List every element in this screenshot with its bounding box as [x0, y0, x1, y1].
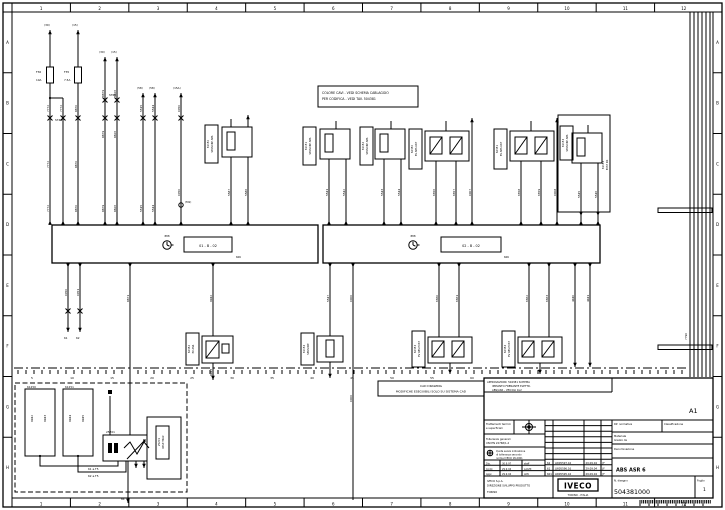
tb-top-note-2: IMPIANTO FRENANTE ELETTR. [492, 384, 531, 388]
zone-label-bottom: 2 [98, 502, 101, 507]
signature-cell: Dis. [486, 463, 491, 466]
note-line-2: PER CODIFICA - VEDI TAV. 504381 [322, 97, 376, 101]
entry-arrow [115, 221, 119, 225]
solenoid-diagonals [522, 341, 554, 357]
zone-label-top: 8 [449, 6, 452, 11]
exit-arrow [328, 263, 332, 267]
entry-arrow [434, 221, 438, 225]
wire-label: 0000 [349, 395, 353, 402]
fuse-symbol [47, 67, 54, 83]
zone-label-left: G [6, 404, 9, 409]
tb-sheet-label: Foglio [697, 479, 705, 483]
revision-cell: LW05596.16 [555, 466, 571, 470]
entry-arrow [76, 221, 80, 225]
wire-arrow [142, 464, 146, 468]
zone-label-top: 2 [98, 6, 101, 11]
zone-label-left: F [6, 344, 9, 349]
zone-label-bottom: 6 [332, 502, 335, 507]
wire-label: 9943 [43, 415, 47, 422]
zone-label-top: 5 [274, 6, 277, 11]
exit-arrow [78, 263, 82, 267]
signature-cell: Appr. [486, 473, 492, 476]
zone-label-left: D [6, 222, 9, 227]
exit-arrow [351, 263, 355, 267]
wire-label: 9945 [81, 415, 85, 422]
ecu-right: 888 02 - B - 02 606 [323, 225, 600, 263]
tb-dwg-label: N. disegno [614, 479, 628, 483]
wire-label: 0007 [468, 189, 472, 196]
component-label: EV ABS POST [418, 341, 421, 357]
zone-label-bottom: 10 [564, 502, 570, 507]
wire-label: 9942 [30, 415, 34, 422]
zone-label-right: D [716, 222, 719, 227]
exit-arrow [211, 263, 215, 267]
exit-arrow [573, 263, 577, 267]
revision-cell: 29.09.04 [586, 461, 598, 465]
exit-arrow [128, 263, 132, 267]
zone-label-bottom: 12 [681, 502, 687, 507]
chassis-mark-label: 40 [310, 376, 314, 380]
wire-arrow [538, 370, 542, 374]
wire-label: 6661 [455, 295, 459, 302]
signature-cell: LAGHI [524, 468, 532, 471]
component-label: EV ABS POST [508, 341, 511, 357]
exit-arrow [588, 263, 592, 267]
projection-symbol-icon [522, 420, 536, 434]
wire-label: 5547 [326, 295, 330, 302]
ecu-right-ref: 02 - B - 02 [462, 244, 480, 248]
wire-arrow [141, 93, 145, 97]
wire-label: 5544 [151, 105, 155, 112]
exit-arrow [457, 263, 461, 267]
wire-label: 8879 [101, 90, 105, 97]
wire-label: 7772 [59, 105, 63, 112]
wire-label: 6662 [525, 295, 529, 302]
signature-cell: 29.9.04 [502, 473, 512, 476]
entry-arrow [229, 221, 233, 225]
wire-label: 5545 [577, 191, 581, 198]
wire-arrow [179, 93, 183, 97]
component-label: SENSORE [307, 343, 310, 355]
wire-label: 61251 [65, 385, 74, 389]
bus-bar [658, 208, 712, 213]
wire-label: 6657 [452, 189, 456, 196]
wire-arrow [470, 118, 474, 122]
component-label-boxes [156, 125, 573, 459]
zone-label-top: 1 [40, 6, 43, 11]
component-label: EV ASR [192, 344, 195, 353]
wire-label: 8870 [74, 161, 78, 168]
wire-label: (15) [111, 50, 117, 54]
chassis-mark-label: 45 [350, 376, 354, 380]
component-label: 61151 [304, 142, 308, 151]
zone-label-bottom: 9 [507, 502, 510, 507]
entry-arrow [399, 221, 403, 225]
revision-cell: 29.09.04 [586, 472, 598, 476]
zone-label-top: 4 [215, 6, 218, 11]
harness-bus [658, 208, 712, 350]
ecu-left-ref: 01 - B - 02 [199, 244, 217, 248]
tb-mat-2: Grezzo da [614, 438, 627, 442]
entry-arrow [596, 221, 600, 225]
wire-label: F36 [36, 70, 41, 74]
entry-arrow [153, 221, 157, 225]
wire-label: (58) [137, 86, 143, 90]
cad-note-box: CAD DRAWING MODIFICHE ESEGUIBILI SOLO SU… [378, 381, 484, 396]
wire-label: 62 a.T5 [88, 474, 99, 478]
wire-label: 61 [64, 336, 68, 340]
ecu-left-box [52, 225, 318, 263]
exit-arrow [547, 263, 551, 267]
solenoid-diagonal [206, 341, 219, 358]
zone-label-bottom: 3 [157, 502, 160, 507]
signature-cell: staff [524, 463, 530, 466]
wire-arrow [76, 30, 80, 34]
wire-label: 61 a.T5 [88, 467, 99, 471]
zone-label-right: B [716, 101, 719, 106]
wire-label: 5586 [244, 189, 248, 196]
wire-label: (15A) [173, 86, 181, 90]
chassis-mark-label: 30 [230, 376, 234, 380]
wire-arrow [448, 370, 452, 374]
wire-label: 5541 [325, 189, 329, 196]
entry-arrow [344, 221, 348, 225]
chassis-mark-label: 25 [190, 376, 194, 380]
wire-label: (58) [149, 86, 155, 90]
component-label: 62350 [410, 145, 414, 154]
component-label: SENSORE ABS [309, 137, 312, 154]
wire-label: 7772 [46, 161, 50, 168]
chassis-mark-label: 50 [390, 376, 394, 380]
zone-label-top: 12 [681, 6, 687, 11]
wire-label: 7.5A [64, 78, 70, 82]
wire-label: 5544 [397, 189, 401, 196]
wire-label: 0008 [553, 189, 557, 196]
chassis-mark-label: 5 [31, 376, 33, 380]
wire-label: 5543 [380, 189, 384, 196]
component-label: 61152 [361, 142, 365, 151]
iveco-logo: IVECO [564, 482, 592, 491]
tb-norm-label: Rif. normativa [614, 422, 633, 426]
ecu-right-clock-label: 888 [411, 234, 416, 238]
exit-arrow [437, 263, 441, 267]
note-box: COLORE CAVI - VEDI SCHEMA CABLAGGIO PER … [318, 86, 418, 107]
wire-label: 5515 [139, 105, 143, 112]
signature-cell: Contr. [486, 468, 493, 471]
wire-label: 9943 [209, 369, 213, 376]
tb-den-label: Denominazione [614, 447, 635, 451]
tb-top-note-3: ABS/ASR - VEICOLI 4x2 [492, 388, 522, 392]
resistor-symbol [577, 138, 585, 156]
entry-arrow [555, 221, 559, 225]
revision-cell: 601 [547, 472, 552, 476]
component-label: SENSORE ABS [211, 135, 214, 152]
wire-label: 61250 [27, 385, 36, 389]
wire-label: 4441 [586, 295, 590, 302]
zone-label-bottom: 7 [390, 502, 393, 507]
wire-label: (30) [44, 23, 50, 27]
component-label: POST DX [606, 159, 609, 170]
component-label: 61154 [302, 345, 306, 354]
wire-label: 84 [121, 497, 125, 501]
zone-label-bottom: 4 [215, 502, 218, 507]
zone-label-top: 9 [507, 6, 510, 11]
tb-company-3: TORINO [487, 490, 497, 494]
wire-arrow [573, 363, 577, 367]
relay-coil [114, 443, 118, 453]
wire-label: 5515 [139, 205, 143, 212]
entry-arrow [246, 221, 250, 225]
exit-arrow [527, 263, 531, 267]
tb-gen-2: UNI EN 22768/1-2 [486, 441, 510, 445]
revision-cell: LW05595.16 [555, 472, 571, 476]
ground-pad [108, 390, 112, 394]
wire-label: 4440 [571, 295, 575, 302]
zone-label-left: E [6, 283, 9, 288]
entry-arrow [48, 221, 52, 225]
chassis-mark-label: 15 [110, 376, 114, 380]
entry-arrow [519, 221, 523, 225]
wire-label: 6658 [517, 189, 521, 196]
component-label: 61150 [206, 140, 210, 149]
solenoid-diagonals [515, 137, 547, 154]
tb-company-1: IVECO S.p.A. [487, 479, 504, 483]
junction-dot [77, 455, 79, 457]
cad-note-line-2: MODIFICHE ESEGUIBILI SOLO SU SISTEMA CAD [396, 390, 467, 394]
wire-label: 6659 [537, 189, 541, 196]
tb-class-label: Classificazione [664, 422, 684, 426]
title-block: APPROVAZIONI: 504381 SCHEMA IMPIANTO FRE… [484, 378, 713, 498]
junction-dot [49, 97, 51, 99]
revision-cell: 62 [547, 461, 551, 465]
wire-label: 0051 [76, 289, 80, 296]
tb-mat-1: Materiale [614, 434, 627, 438]
wire-label: (M1) [185, 200, 191, 204]
solenoid-diagonals [432, 341, 464, 357]
wire-arrow [579, 212, 583, 216]
fuse-symbol [75, 67, 82, 83]
zone-label-left: C [6, 161, 9, 166]
relay-coil [108, 443, 112, 453]
note-line-1: COLORE CAVI - VEDI SCHEMA CABLAGGIO [322, 91, 389, 95]
tb-top-note-1: APPROVAZIONI: 504381 SCHEMA [487, 380, 530, 384]
chassis-mark-label: 60 [470, 376, 474, 380]
revision-cell: JF [602, 472, 606, 476]
wire-label: 6660 [435, 295, 439, 302]
zone-label-right: A [716, 40, 719, 45]
resistor-symbol [380, 134, 388, 152]
wire-label: 5542 [342, 189, 346, 196]
ecu-right-tag: 606 [504, 255, 509, 259]
wiring-schematic-canvas: COLORE CAVI - VEDI SCHEMA CABLAGGIO PER … [0, 0, 725, 510]
wire-label: 5544 [151, 205, 155, 212]
wire-label: 8870 [74, 205, 78, 212]
resistor-symbol [227, 132, 235, 150]
wire-arrow [153, 93, 157, 97]
cad-note-line-1: CAD DRAWING [420, 384, 443, 388]
wire-label: 6663 [545, 295, 549, 302]
component-label: 62352 [187, 345, 191, 354]
wire-label: 8826 [113, 205, 117, 212]
chassis-mark-label: 55 [430, 376, 434, 380]
wire-arrow [78, 328, 82, 332]
component-label: 62354 [503, 345, 507, 354]
revision-cell: JF [602, 461, 606, 465]
zone-label-top: 7 [390, 6, 393, 11]
tb-description: ABS ASR 6 [616, 468, 646, 474]
entry-arrow [327, 221, 331, 225]
resistor-symbol [326, 340, 334, 357]
component-label: SENSORE ABS [366, 137, 369, 154]
wire-label: 9944 [68, 415, 72, 422]
wire-label: 0000 [349, 295, 353, 302]
wire-label: 0050 [177, 105, 181, 112]
revision-cell: JF [602, 466, 606, 470]
revision-cell: LW05597.16 [555, 461, 571, 465]
wire-arrow [103, 57, 107, 61]
zone-label-right: C [716, 161, 719, 166]
zone-label-top: 3 [157, 6, 160, 11]
solenoid-diagonals [430, 137, 462, 154]
chassis-mark-label: 35 [270, 376, 274, 380]
chassis-mark-label: 20 [150, 376, 154, 380]
entry-arrow [454, 221, 458, 225]
wire-label: 0050 [177, 189, 181, 196]
valve-box [202, 336, 233, 363]
wire-label: 8879 [101, 205, 105, 212]
tb-logo-sub: TORINO - ITALIA [568, 493, 589, 497]
entry-arrow [141, 221, 145, 225]
component-label: 25201 [157, 438, 161, 447]
entry-arrow [470, 221, 474, 225]
revision-cell: 61 [547, 466, 551, 470]
wire-arrow [596, 212, 600, 216]
wire-label: 8879 [101, 131, 105, 138]
wire-label: 7790 [684, 333, 688, 340]
wire-label: 0050 [64, 289, 68, 296]
junction-dot [39, 455, 41, 457]
wire-label: ST40 [55, 118, 62, 122]
wire-label: (30) [99, 50, 105, 54]
tb-company-2: DIREZIONE SVILUPPO PRODOTTO [487, 484, 530, 488]
wire-arrow [48, 30, 52, 34]
wire-label: 5546 [594, 191, 598, 198]
zone-label-bottom: 5 [274, 502, 277, 507]
zone-label-top: 10 [564, 6, 570, 11]
zone-label-bottom: 11 [623, 502, 629, 507]
tb-tol-3: norme IVECO 18-2001 [496, 457, 523, 460]
wire-arrow [246, 115, 250, 119]
wire-label: F35 [64, 70, 69, 74]
zone-label-bottom: 1 [40, 502, 43, 507]
tb-dwg-number: 504381000 [614, 489, 650, 496]
chassis-mark-label: 10 [70, 376, 74, 380]
wire-label: 8870 [74, 105, 78, 112]
tb-treat-2: e superficiali [486, 426, 503, 430]
entry-arrow [103, 221, 107, 225]
wire-label: 10A [36, 78, 42, 82]
zone-label-left: A [6, 40, 9, 45]
zone-label-right: E [716, 283, 719, 288]
wire-arrow [588, 363, 592, 367]
valve-components [202, 131, 562, 363]
component-label: 61153 [601, 161, 605, 170]
wire-label: 25201 [106, 430, 115, 434]
wire-label: 8826 [113, 90, 117, 97]
zone-label-right: H [716, 465, 719, 470]
wire-label: (15) [72, 23, 78, 27]
component-label: 61153 [561, 139, 565, 148]
ecu-left: 888 01 - B - 02 606 [52, 225, 318, 263]
signature-cell: 30.9.97 [502, 463, 512, 466]
wire-arrow [328, 374, 332, 378]
zone-label-right: F [716, 344, 719, 349]
entry-arrow [539, 221, 543, 225]
zone-label-right: G [716, 404, 719, 409]
zone-label-left: B [6, 101, 9, 106]
entry-arrow [61, 221, 65, 225]
wire-label: 7772 [46, 205, 50, 212]
component-label: 62351 [495, 145, 499, 154]
tb-sheet-no: 1 [703, 487, 706, 493]
zone-label-left: H [6, 465, 9, 470]
wire-label: 9942 [209, 295, 213, 302]
zone-label-bottom: 8 [449, 502, 452, 507]
wire-arrow [115, 57, 119, 61]
wire-arrow [134, 464, 138, 468]
tb-sheet-ref: A1 [689, 407, 698, 415]
entry-arrow [382, 221, 386, 225]
valve-port [222, 344, 229, 353]
wire-arrow [66, 328, 70, 332]
tb-gen-1: Tolleranze generali [486, 437, 511, 441]
component-label: 62353 [413, 345, 417, 354]
signature-cell: 29.9.04 [502, 468, 512, 471]
zone-label-top: 11 [623, 6, 629, 11]
resistor-symbol [325, 134, 333, 152]
wire-label: 7772 [46, 105, 50, 112]
relay-contacts [124, 440, 149, 459]
wire-label: 8826 [113, 131, 117, 138]
component-label: SENSORE ABS [566, 134, 569, 151]
component-label: RELE TRAZ [162, 435, 165, 448]
ecu-left-clock-label: 888 [165, 234, 170, 238]
wire-label: 5587 [227, 189, 231, 196]
wire-label: 8871 [126, 295, 130, 302]
wire-label: 6656 [432, 189, 436, 196]
component-label: EV ABS ANT [415, 141, 418, 156]
exit-arrow [66, 263, 70, 267]
wire-label: 62 [76, 336, 80, 340]
tolerance-symbol-icon [487, 450, 493, 456]
ecu-left-tag: 606 [236, 255, 241, 259]
zone-label-top: 6 [332, 6, 335, 11]
entry-arrow [179, 221, 183, 225]
tb-treat-1: Trattamenti termici [486, 422, 511, 426]
component-label: EV ABS ANT [500, 141, 503, 156]
revision-cell: 29.09.04 [586, 466, 598, 470]
bus-bar [658, 345, 712, 350]
signature-cell: ADV [524, 473, 529, 476]
entry-arrow [579, 221, 583, 225]
